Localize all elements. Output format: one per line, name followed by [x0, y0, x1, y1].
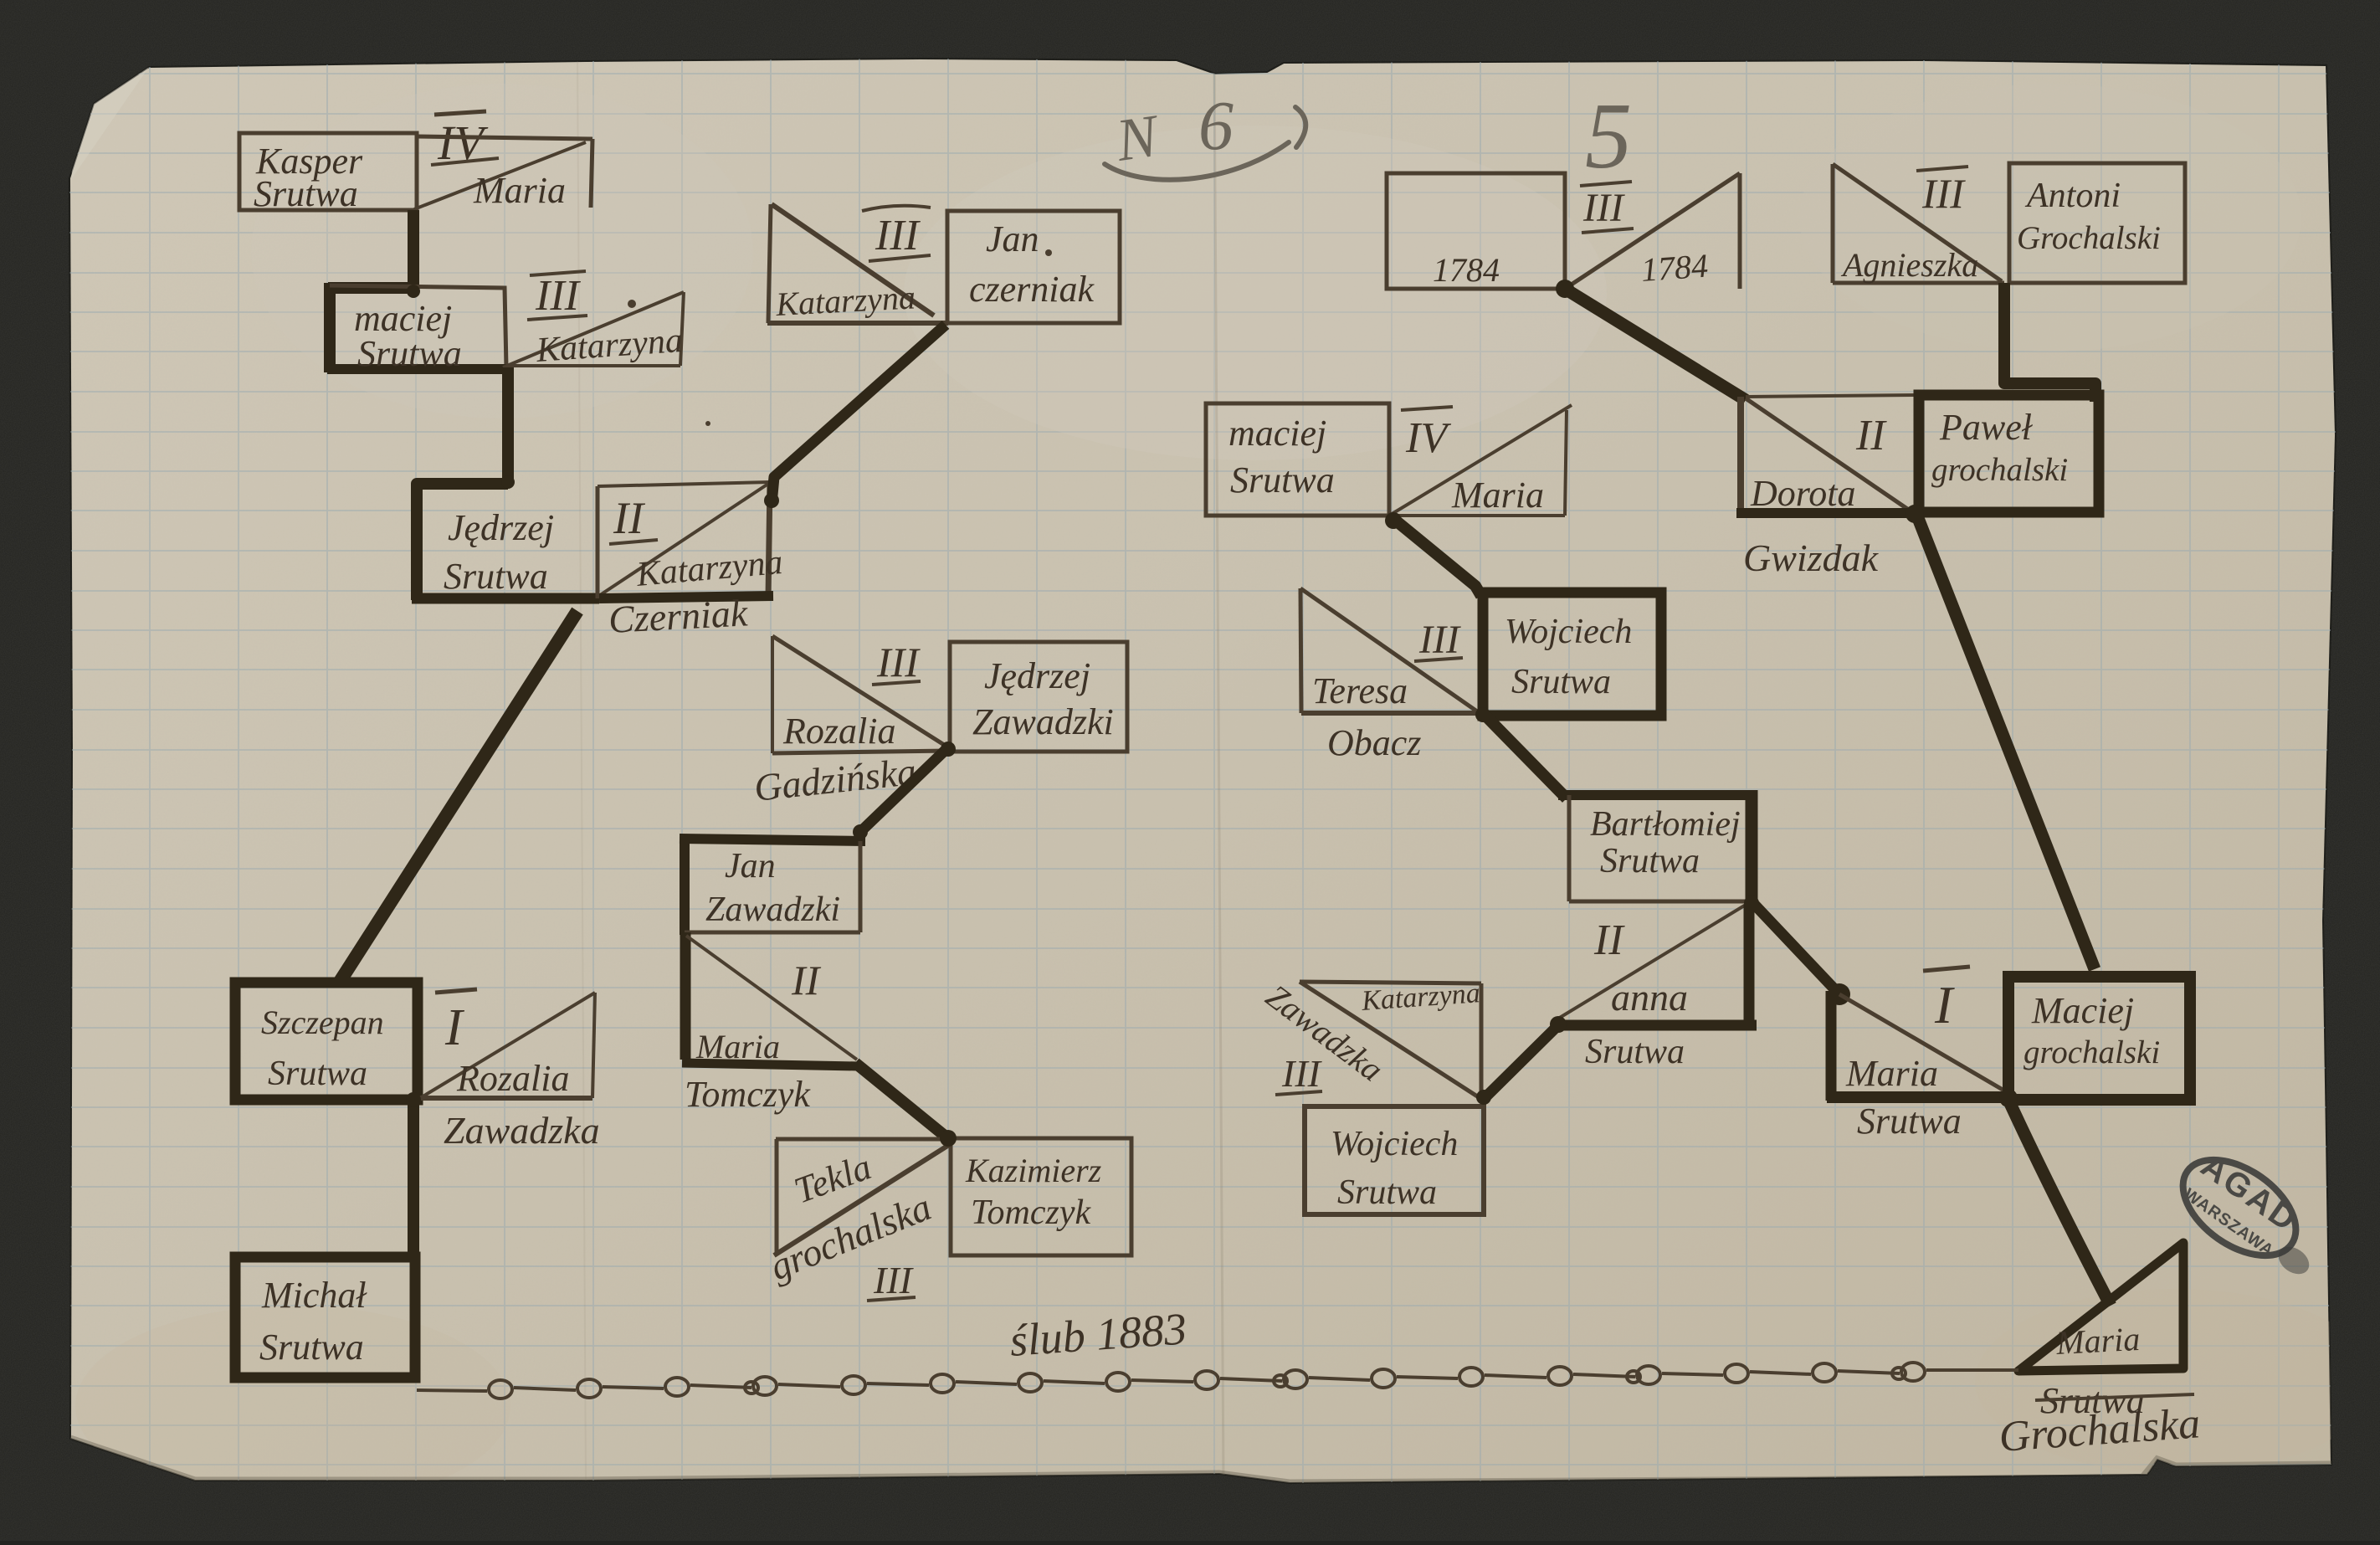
svg-text:anna: anna — [1611, 976, 1688, 1019]
svg-text:Zawadzki: Zawadzki — [705, 891, 840, 929]
svg-text:III: III — [535, 272, 582, 320]
svg-text:Wojciech: Wojciech — [1331, 1125, 1458, 1163]
svg-text:III: III — [1582, 186, 1625, 230]
svg-text:III: III — [1418, 618, 1461, 662]
svg-text:Tomczyk: Tomczyk — [685, 1074, 811, 1115]
svg-text:Jędrzej: Jędrzej — [984, 655, 1090, 696]
svg-text:Srutwa: Srutwa — [1600, 842, 1700, 880]
svg-text:czerniak: czerniak — [969, 269, 1095, 310]
svg-text:1784: 1784 — [1433, 251, 1500, 289]
svg-text:Rozalia: Rozalia — [456, 1058, 569, 1099]
svg-text:maciej: maciej — [1228, 413, 1326, 454]
svg-text:1784: 1784 — [1639, 247, 1709, 289]
svg-text:grochalski: grochalski — [2024, 1034, 2160, 1070]
svg-text:Srutwa: Srutwa — [1230, 459, 1335, 500]
svg-text:Srutwa: Srutwa — [254, 173, 358, 214]
svg-text:5: 5 — [1585, 85, 1632, 188]
svg-text:6: 6 — [1198, 87, 1234, 165]
svg-text:Maciej: Maciej — [2031, 990, 2134, 1031]
svg-text:Srutwa: Srutwa — [1585, 1033, 1685, 1071]
svg-text:Grochalski: Grochalski — [2017, 220, 2161, 256]
svg-text:Szczepan: Szczepan — [261, 1003, 384, 1041]
svg-text:Paweł: Paweł — [1939, 407, 2034, 448]
svg-text:Czerniak: Czerniak — [608, 591, 750, 641]
svg-text:Maria: Maria — [2054, 1320, 2141, 1362]
svg-text:III: III — [876, 639, 921, 685]
svg-text:Maria: Maria — [1451, 475, 1544, 516]
svg-text:II: II — [791, 957, 822, 1003]
svg-text:Antoni: Antoni — [2024, 177, 2121, 215]
svg-text:Maria: Maria — [1845, 1053, 1938, 1094]
svg-text:III: III — [873, 1259, 915, 1301]
svg-text:Srutwa: Srutwa — [1511, 663, 1611, 701]
svg-text:Kazimierz: Kazimierz — [965, 1152, 1102, 1189]
svg-text:Gwizdak: Gwizdak — [1743, 536, 1880, 579]
svg-text:Srutwa: Srutwa — [1857, 1101, 1962, 1142]
svg-text:Srutwa: Srutwa — [444, 556, 548, 597]
svg-text:I: I — [1934, 975, 1955, 1034]
svg-text:Obacz: Obacz — [1327, 722, 1421, 763]
svg-text:Agnieszka: Agnieszka — [1840, 246, 1978, 284]
svg-text:Zawadzki: Zawadzki — [972, 701, 1114, 742]
svg-text:II: II — [613, 493, 646, 543]
svg-text:Rozalia: Rozalia — [782, 711, 895, 752]
svg-text:Teresa: Teresa — [1312, 670, 1408, 711]
svg-text:III: III — [1281, 1052, 1323, 1095]
svg-text:Maria: Maria — [473, 170, 566, 211]
svg-text:Srutwa: Srutwa — [357, 333, 462, 374]
svg-text:Jan: Jan — [986, 218, 1039, 259]
svg-text:II: II — [1855, 412, 1887, 459]
svg-text:Maria: Maria — [695, 1028, 780, 1065]
svg-text:IV: IV — [1405, 414, 1451, 462]
svg-text:Dorota: Dorota — [1750, 473, 1856, 514]
svg-text:Srutwa: Srutwa — [259, 1327, 364, 1368]
svg-text:III: III — [875, 212, 921, 259]
svg-text:Bartłomiej: Bartłomiej — [1590, 805, 1741, 844]
svg-text:Srutwa: Srutwa — [268, 1055, 367, 1093]
svg-text:Katarzyna: Katarzyna — [774, 278, 916, 323]
svg-text:I: I — [444, 999, 465, 1056]
svg-text:Srutwa: Srutwa — [1337, 1173, 1437, 1212]
svg-text:Jędrzej: Jędrzej — [448, 507, 554, 548]
svg-text:Zawadzka: Zawadzka — [444, 1109, 600, 1152]
svg-text:Tomczyk: Tomczyk — [971, 1193, 1091, 1232]
svg-text:Michał: Michał — [261, 1275, 367, 1316]
svg-text:II: II — [1593, 916, 1625, 964]
svg-text:Jan: Jan — [725, 847, 776, 885]
svg-text:grochalski: grochalski — [1931, 452, 2068, 488]
svg-text:III: III — [1921, 170, 1966, 217]
svg-text:Wojciech: Wojciech — [1505, 613, 1632, 651]
